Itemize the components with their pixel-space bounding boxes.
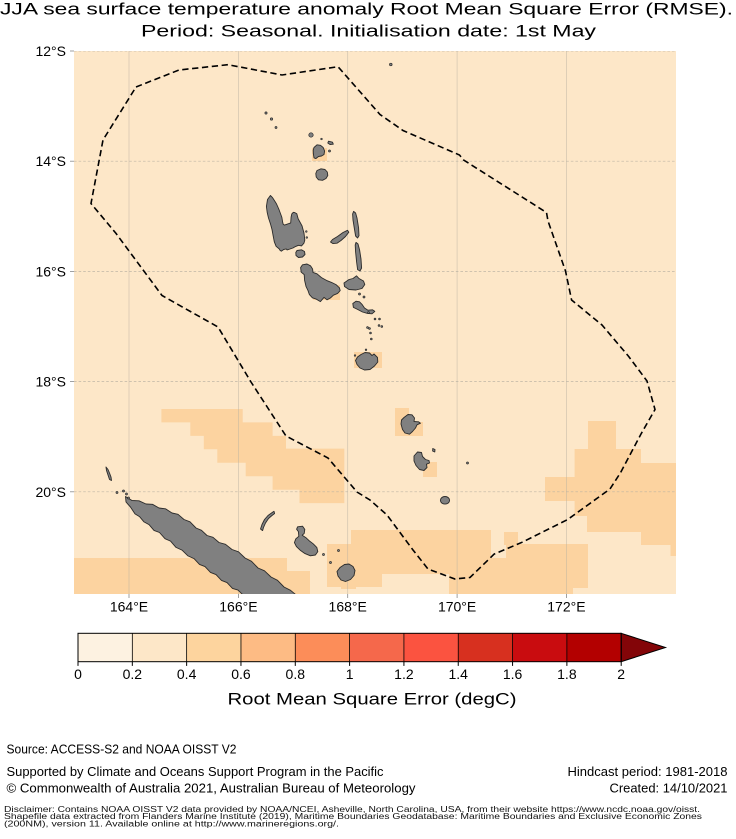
svg-text:0.2: 0.2 [123, 666, 143, 682]
svg-text:Supported by Climate and Ocean: Supported by Climate and Oceans Support … [7, 765, 384, 779]
svg-text:164°E: 164°E [110, 599, 148, 615]
svg-text:18°S: 18°S [35, 374, 66, 390]
svg-text:20°S: 20°S [35, 484, 66, 500]
svg-text:0.8: 0.8 [286, 666, 306, 682]
svg-text:Created: 14/10/2021: Created: 14/10/2021 [610, 782, 728, 796]
svg-text:0.4: 0.4 [177, 666, 197, 682]
svg-text:0.6: 0.6 [231, 666, 251, 682]
svg-text:(200NM), version 11. Available: (200NM), version 11. Available online at… [4, 819, 339, 828]
svg-text:172°E: 172°E [547, 599, 585, 615]
svg-text:16°S: 16°S [35, 263, 66, 279]
svg-text:Hindcast period: 1981-2018: Hindcast period: 1981-2018 [568, 765, 728, 779]
svg-text:170°E: 170°E [438, 599, 476, 615]
svg-text:1.8: 1.8 [557, 666, 577, 682]
svg-text:12°S: 12°S [35, 43, 66, 59]
svg-text:Period: Seasonal. Initialisati: Period: Seasonal. Initialisation date: 1… [141, 22, 597, 41]
svg-text:0: 0 [74, 666, 82, 682]
svg-text:168°E: 168°E [329, 599, 367, 615]
svg-text:Root Mean Square Error (degC): Root Mean Square Error (degC) [228, 690, 517, 709]
svg-text:14°S: 14°S [35, 153, 66, 169]
svg-text:© Commonwealth of Australia 20: © Commonwealth of Australia 2021, Austra… [7, 782, 417, 796]
svg-text:1.2: 1.2 [394, 666, 414, 682]
svg-text:JJA sea surface temperature an: JJA sea surface temperature anomaly Root… [0, 0, 733, 19]
svg-text:2: 2 [617, 666, 625, 682]
svg-text:1.4: 1.4 [449, 666, 469, 682]
svg-text:Source: ACCESS-S2 and NOAA OIS: Source: ACCESS-S2 and NOAA OISST V2 [7, 743, 237, 757]
svg-text:1.6: 1.6 [503, 666, 523, 682]
svg-text:166°E: 166°E [219, 599, 257, 615]
svg-text:1: 1 [346, 666, 354, 682]
